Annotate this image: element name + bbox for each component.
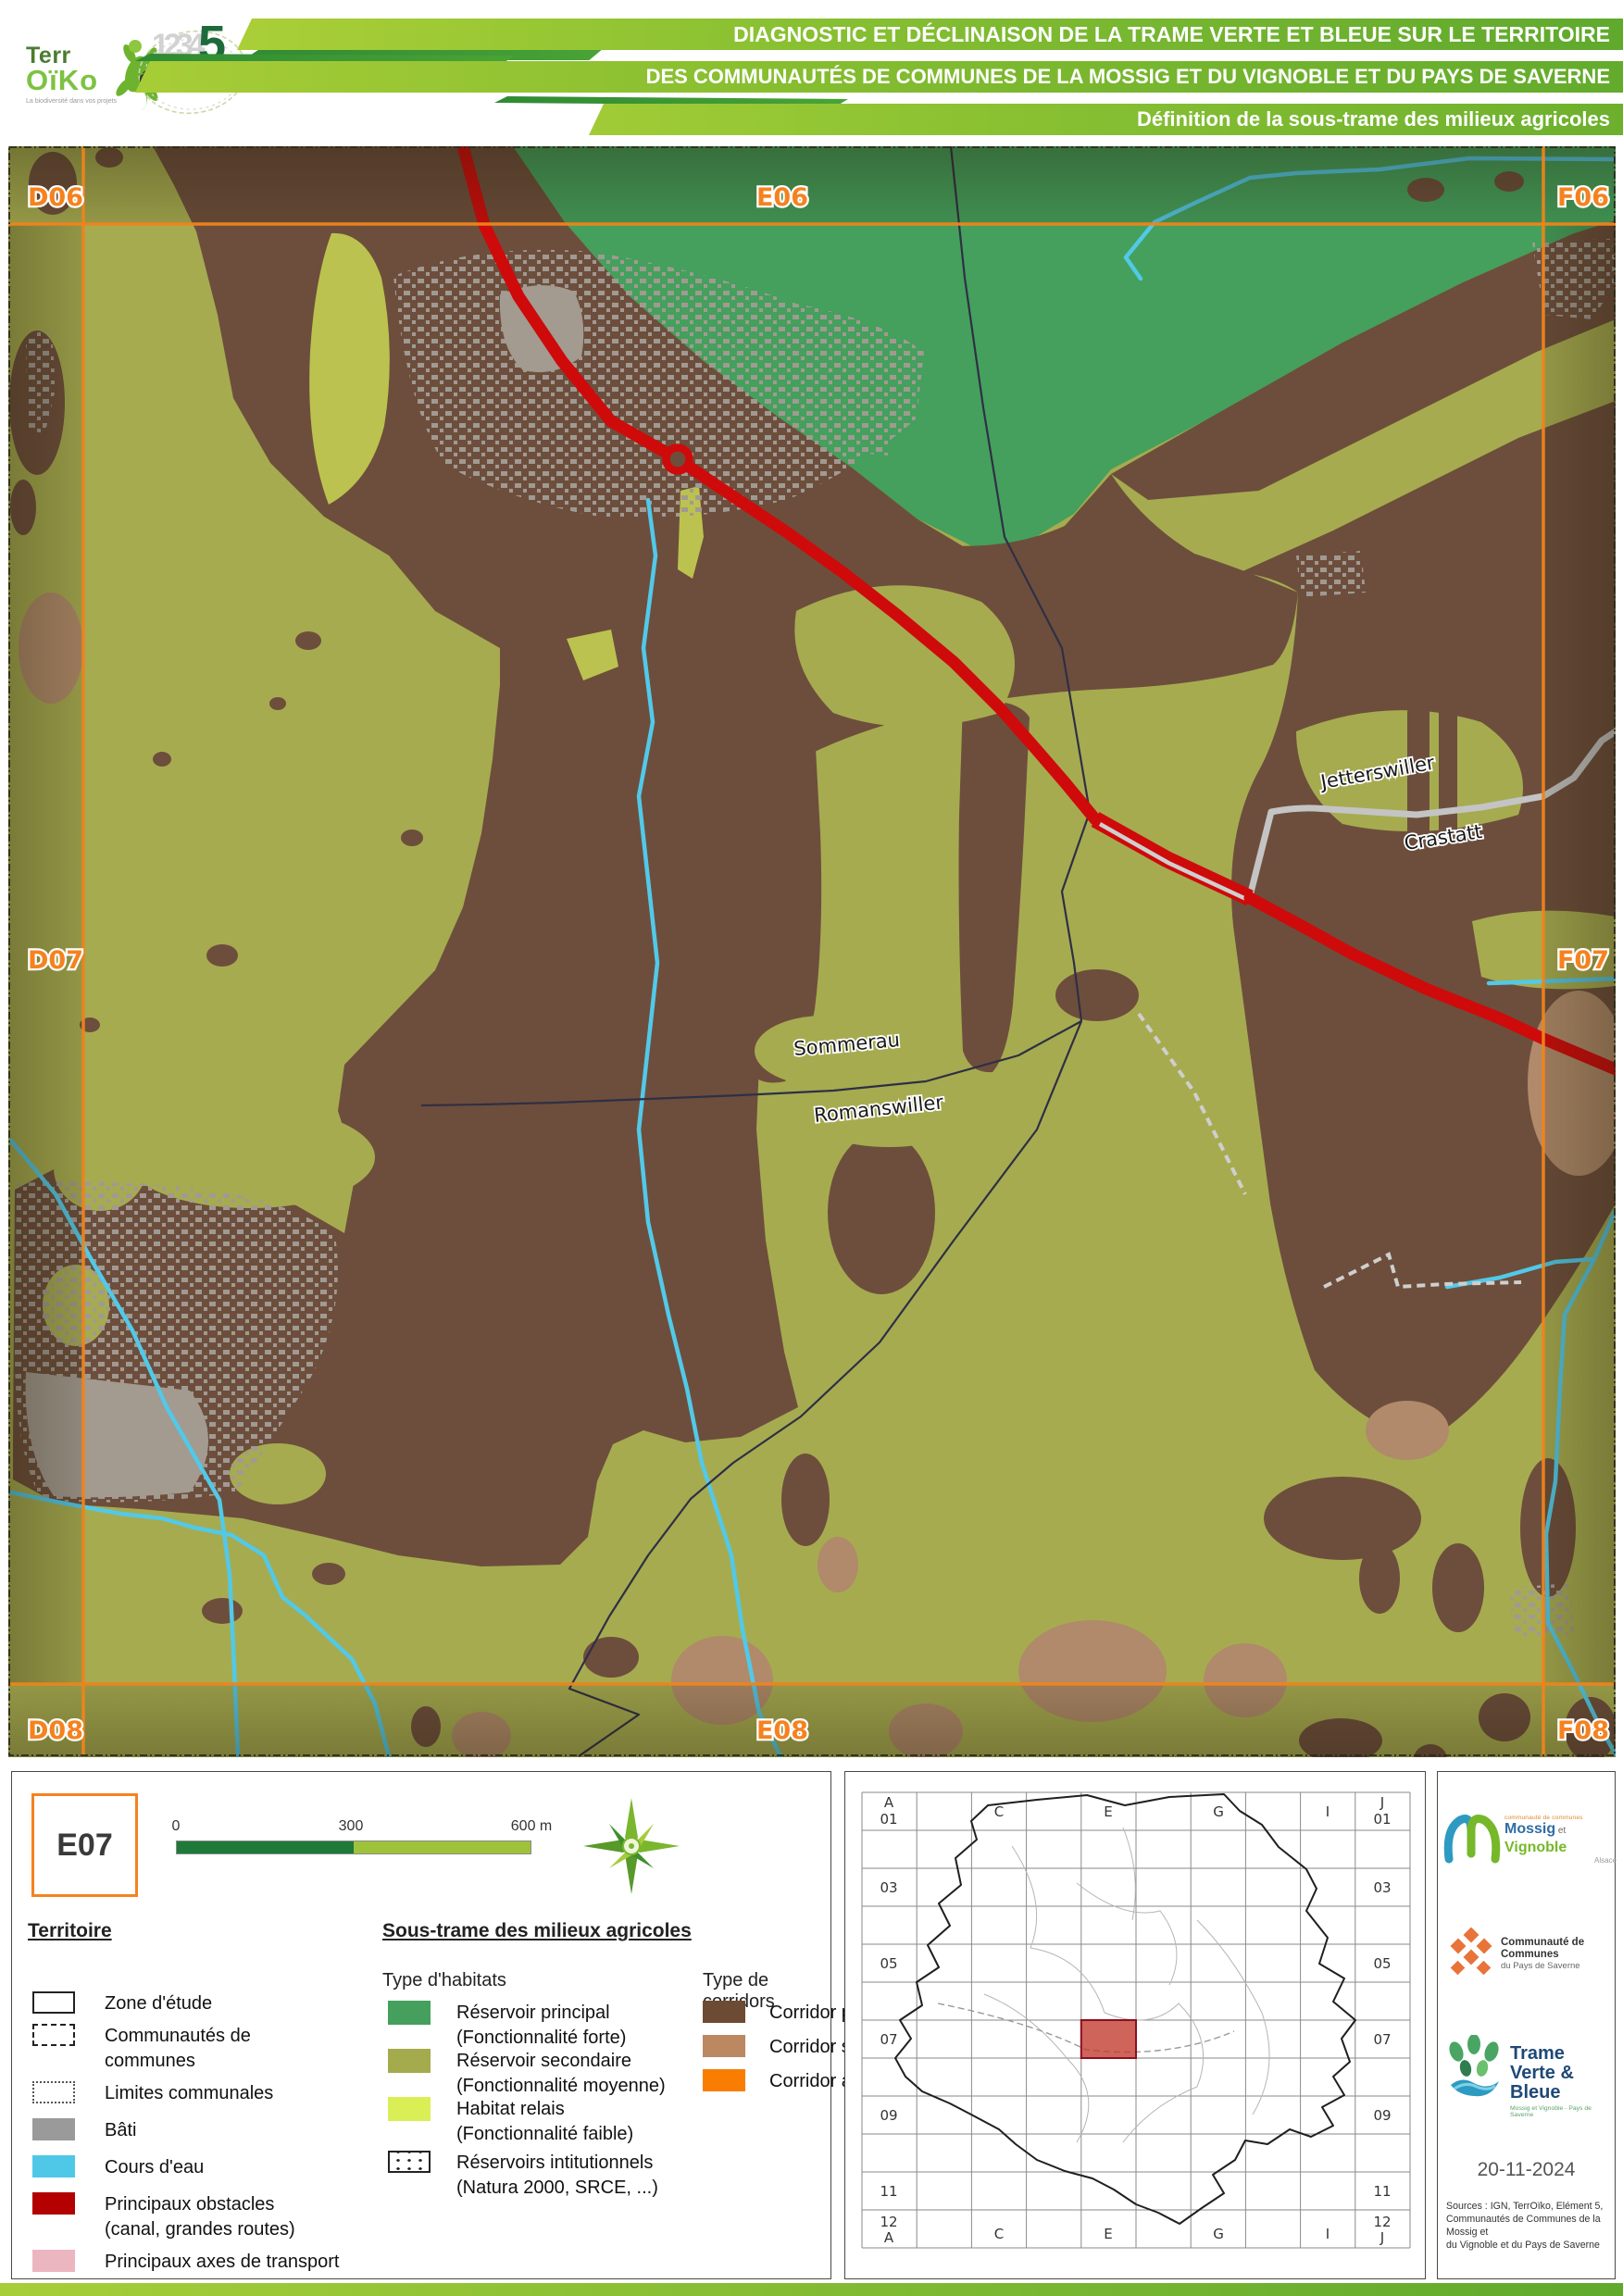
reservoirs-institutionnels-label2: (Natura 2000, SRCE, ...) xyxy=(456,2177,658,2198)
saverne-sub: du Pays de Saverne xyxy=(1501,1961,1617,1971)
tvb-title-2: Verte & Bleue xyxy=(1510,2064,1617,2103)
sous-trame-heading: Sous-trame des milieux agricoles xyxy=(382,1920,692,1942)
inset-communes xyxy=(984,1828,1269,2142)
compass-rose-icon xyxy=(581,1795,682,1897)
inset-label: 09 xyxy=(1373,2107,1391,2124)
legend-item-communautes: Communautés de communes xyxy=(32,2024,251,2074)
tvb-subtitle: Mossig et Vignoble - Pays de Saverne xyxy=(1510,2105,1617,2118)
legend-item-reservoirs-institutionnels: Réservoirs intitutionnels (Natura 2000, … xyxy=(388,2151,658,2201)
obstacles-label: Principaux obstacles xyxy=(105,2194,274,2215)
scale-bar xyxy=(176,1841,531,1854)
legend-item-bati: Bâti xyxy=(32,2118,136,2143)
footer-green-bar xyxy=(0,2283,1623,2296)
header: Terr OïKo La biodiversité dans vos proje… xyxy=(0,0,1623,146)
inset-label: 01 xyxy=(1373,1811,1391,1828)
obstacles-swatch xyxy=(32,2192,75,2215)
inset-label: 09 xyxy=(880,2107,897,2124)
map-date: 20-11-2024 xyxy=(1438,2159,1615,2181)
inset-locator-panel: A 01 C E G I J 01 03 05 07 09 11 12 A 03… xyxy=(844,1771,1426,2279)
inset-label: C xyxy=(994,2226,1004,2242)
tvb-logo: Trame Verte & Bleue Mossig et Vignoble -… xyxy=(1438,2033,1617,2126)
map-svg: D06 E06 F06 D07 F07 D08 E08 F08 Sommerau… xyxy=(8,146,1616,1757)
scale-tick-300: 300 xyxy=(339,1818,364,1835)
habitat-relais-swatch xyxy=(388,2097,431,2121)
mossig-name: Mossig xyxy=(1504,1821,1555,1837)
reservoir-principal-label: Réservoir principal xyxy=(456,2003,610,2023)
limites-swatch xyxy=(32,2081,75,2103)
territoire-heading: Territoire xyxy=(28,1920,112,1942)
reservoir-secondaire-label2: (Fonctionnalité moyenne) xyxy=(456,2076,666,2096)
legend-item-reservoir-principal: Réservoir principal (Fonctionnalité fort… xyxy=(388,2001,626,2051)
legend-item-cours-eau: Cours d'eau xyxy=(32,2155,204,2180)
inset-highlight-cell xyxy=(1081,2020,1136,2058)
pays-saverne-logo: Communauté de Communes du Pays de Savern… xyxy=(1438,1928,1617,1992)
reservoirs-institutionnels-label: Réservoirs intitutionnels xyxy=(456,2152,653,2173)
mossig-et: et xyxy=(1555,1826,1566,1836)
legend-item-limites: Limites communales xyxy=(32,2081,273,2106)
title-line-3: Définition de la sous-trame des milieux … xyxy=(1137,107,1623,131)
corridor-secondaire-swatch xyxy=(703,2035,745,2057)
vignoble-name: Vignoble xyxy=(1504,1840,1567,1855)
cours-eau-swatch xyxy=(32,2155,75,2177)
grid-label-e06: E06 xyxy=(756,183,808,212)
inset-label: 11 xyxy=(880,2183,897,2200)
type-habitats-title: Type d'habitats xyxy=(382,1970,506,1991)
bati-label: Bâti xyxy=(105,2118,136,2143)
map-sheet-page: Terr OïKo La biodiversité dans vos proje… xyxy=(0,0,1623,2296)
reservoir-principal-label2: (Fonctionnalité forte) xyxy=(456,2028,626,2048)
inset-label: 07 xyxy=(880,2031,897,2048)
legend-item-habitat-relais: Habitat relais (Fonctionnalité faible) xyxy=(388,2097,633,2147)
mossig-region: Alsace xyxy=(1504,1856,1617,1865)
inset-label: J xyxy=(1380,1794,1384,1811)
reservoirs-institutionnels-swatch xyxy=(388,2151,431,2173)
inset-label: J xyxy=(1380,2229,1384,2246)
inset-territory-outline xyxy=(895,1794,1355,2224)
inset-label: 12 xyxy=(1373,2214,1391,2230)
inset-label: I xyxy=(1326,1803,1330,1820)
habitat-relais-label: Habitat relais xyxy=(456,2099,565,2119)
roundabout xyxy=(667,448,690,471)
map-canvas: D06 E06 F06 D07 F07 D08 E08 F08 Sommerau… xyxy=(8,146,1616,1757)
sources-line-3: du Vignoble et du Pays de Saverne xyxy=(1446,2240,1600,2251)
scale-tick-600: 600 m xyxy=(511,1818,552,1835)
zone-etude-swatch xyxy=(32,1991,75,2014)
legend-item-reservoir-secondaire: Réservoir secondaire (Fonctionnalité moy… xyxy=(388,2049,666,2099)
inset-label: G xyxy=(1213,2226,1224,2242)
grid-label-d07: D07 xyxy=(28,946,83,975)
grid-label-f06: F06 xyxy=(1557,183,1609,212)
legend-item-obstacles: Principaux obstacles (canal, grandes rou… xyxy=(32,2192,295,2242)
reservoir-secondaire-swatch xyxy=(388,2049,431,2073)
scale-tick-0: 0 xyxy=(172,1818,181,1835)
inset-label: 03 xyxy=(880,1879,897,1896)
grid-label-f07: F07 xyxy=(1557,946,1609,975)
sources-line-1: Sources : IGN, TerrOïko, Elément 5, xyxy=(1446,2201,1603,2212)
reservoir-principal-swatch xyxy=(388,2001,431,2025)
grid-label-d06: D06 xyxy=(28,183,83,212)
corridor-blob xyxy=(1055,969,1139,1021)
title-line-1: DIAGNOSTIC ET DÉCLINAISON DE LA TRAME VE… xyxy=(733,22,1623,47)
inset-label: E xyxy=(1104,2226,1112,2242)
terroiko-logo: Terr OïKo La biodiversité dans vos proje… xyxy=(26,44,135,105)
legend-item-zone-etude: Zone d'étude xyxy=(32,1991,212,2016)
credits-panel: communauté de communes Mossig et Vignobl… xyxy=(1437,1771,1616,2279)
corridor-blob xyxy=(828,1131,935,1294)
inset-label: 05 xyxy=(880,1955,897,1972)
inset-label: A xyxy=(884,2229,894,2246)
grid-label-e08: E08 xyxy=(756,1716,808,1745)
inset-label: 05 xyxy=(1373,1955,1391,1972)
communautes-label: Communautés de xyxy=(105,2026,251,2046)
saverne-name: Communauté de Communes xyxy=(1501,1937,1617,1961)
inset-label: 03 xyxy=(1373,1879,1391,1896)
axes-swatch xyxy=(32,2250,75,2272)
sources-line-2: Communautés de Communes de la Mossig et xyxy=(1446,2214,1601,2238)
reservoir-secondaire-label: Réservoir secondaire xyxy=(456,2051,631,2071)
inset-label: C xyxy=(994,1803,1004,1820)
inset-label: 07 xyxy=(1373,2031,1391,2048)
mossig-vignoble-icon xyxy=(1443,1813,1501,1866)
sheet-cell-id: E07 xyxy=(31,1793,138,1897)
bati-swatch xyxy=(32,2118,75,2140)
grid-label-d08: D08 xyxy=(28,1716,83,1745)
inset-label: A xyxy=(884,1794,894,1811)
corridor-principal-swatch xyxy=(703,2001,745,2023)
inset-label: 12 xyxy=(880,2214,897,2230)
tvb-title-1: Trame xyxy=(1510,2044,1617,2064)
axes-label: Principaux axes de transport xyxy=(105,2250,339,2275)
corridor-restaurer-swatch xyxy=(703,2069,745,2091)
obstacles-label2: (canal, grandes routes) xyxy=(105,2219,295,2240)
legend-panel: E07 0 300 600 m Territoire Zone d'étude xyxy=(11,1771,831,2279)
mossig-small-text: communauté de communes xyxy=(1504,1815,1617,1821)
limites-label: Limites communales xyxy=(105,2081,273,2106)
inset-label: 01 xyxy=(880,1811,897,1828)
communautes-swatch xyxy=(32,2024,75,2046)
inset-label: 11 xyxy=(1373,2183,1391,2200)
title-line-2: DES COMMUNAUTÉS DE COMMUNES DE LA MOSSIG… xyxy=(646,65,1623,89)
tvb-paw-icon xyxy=(1443,2035,1504,2100)
grid-label-f08: F08 xyxy=(1557,1716,1609,1745)
cours-eau-label: Cours d'eau xyxy=(105,2155,204,2180)
title-banner-2: DES COMMUNAUTÉS DE COMMUNES DE LA MOSSIG… xyxy=(0,61,1623,93)
inset-label: E xyxy=(1104,1803,1112,1820)
legend-item-axes: Principaux axes de transport xyxy=(32,2250,339,2275)
habitat-relais-label2: (Fonctionnalité faible) xyxy=(456,2124,633,2144)
inset-label: G xyxy=(1213,1803,1224,1820)
inset-map: A 01 C E G I J 01 03 05 07 09 11 12 A 03… xyxy=(845,1772,1424,2277)
zone-etude-label: Zone d'étude xyxy=(105,1991,212,2016)
communautes-label2: communes xyxy=(105,2051,195,2071)
inset-label: I xyxy=(1326,2226,1330,2242)
pays-saverne-icon xyxy=(1447,1928,1495,1979)
mossig-vignoble-logo: communauté de communes Mossig et Vignobl… xyxy=(1438,1811,1617,1885)
sources-text: Sources : IGN, TerrOïko, Elément 5, Comm… xyxy=(1446,2200,1611,2252)
